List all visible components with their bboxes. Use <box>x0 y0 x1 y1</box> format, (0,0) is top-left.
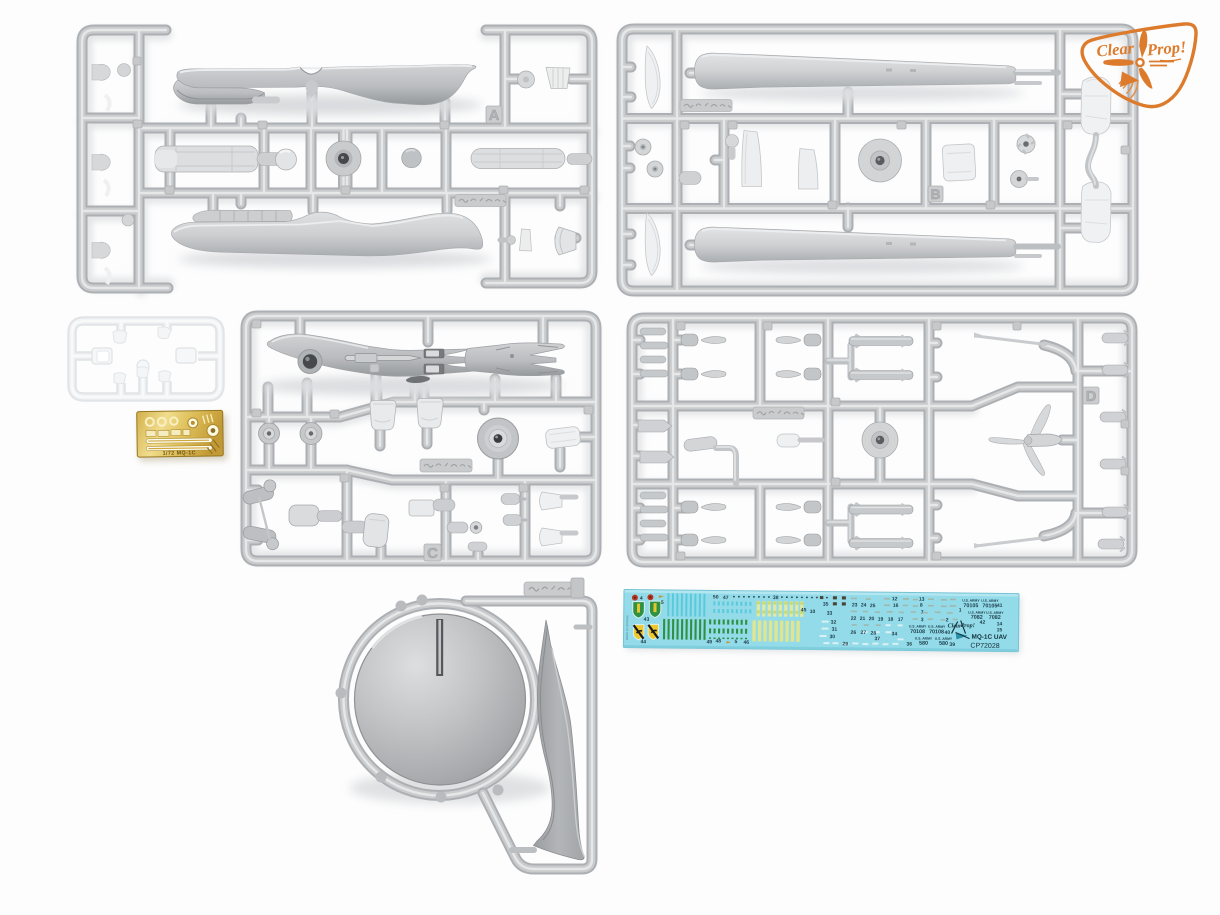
svg-text:Prop!: Prop! <box>1145 37 1187 59</box>
svg-text:CP72028: CP72028 <box>970 643 999 650</box>
svg-text:19: 19 <box>878 617 884 623</box>
svg-text:70105: 70105 <box>982 603 997 609</box>
svg-text:1: 1 <box>959 608 962 614</box>
svg-text:3: 3 <box>921 617 924 623</box>
svg-text:21: 21 <box>860 616 866 622</box>
svg-text:580: 580 <box>939 641 948 647</box>
svg-text:34: 34 <box>892 631 898 637</box>
svg-text:40: 40 <box>945 630 951 636</box>
svg-text:8: 8 <box>920 603 923 609</box>
svg-text:33: 33 <box>827 611 833 617</box>
svg-text:B: B <box>930 186 940 202</box>
svg-text:7: 7 <box>921 610 924 616</box>
svg-text:42: 42 <box>980 620 986 626</box>
svg-text:70108: 70108 <box>910 629 925 635</box>
svg-text:10: 10 <box>810 609 816 615</box>
svg-text:17: 17 <box>898 617 904 623</box>
svg-text:24: 24 <box>861 602 867 608</box>
svg-text:MQ-1C UAV: MQ-1C UAV <box>971 634 1007 641</box>
svg-text:18: 18 <box>888 617 894 623</box>
svg-text:38: 38 <box>773 595 779 601</box>
svg-text:50: 50 <box>713 594 719 600</box>
svg-text:41: 41 <box>997 603 1003 609</box>
svg-text:12: 12 <box>892 596 898 602</box>
svg-text:31: 31 <box>832 627 838 633</box>
svg-text:27: 27 <box>861 630 867 636</box>
svg-text:13: 13 <box>919 597 925 603</box>
svg-text:D: D <box>1086 388 1097 405</box>
svg-text:7082: 7082 <box>989 615 1001 621</box>
svg-text:44: 44 <box>640 639 646 645</box>
svg-text:35: 35 <box>823 602 829 608</box>
svg-text:23: 23 <box>852 602 858 608</box>
svg-text:49: 49 <box>706 639 712 645</box>
svg-text:MADE IN UKRAINE: MADE IN UKRAINE <box>625 615 629 640</box>
svg-text:45: 45 <box>801 607 807 613</box>
svg-text:43: 43 <box>644 617 650 623</box>
svg-text:39: 39 <box>949 642 955 648</box>
svg-text:Prop!: Prop! <box>961 623 975 629</box>
svg-text:70105: 70105 <box>963 603 978 609</box>
svg-text:48: 48 <box>715 638 721 644</box>
svg-text:22: 22 <box>851 616 857 622</box>
svg-text:580: 580 <box>919 641 928 647</box>
svg-text:5: 5 <box>661 600 664 606</box>
svg-text:70108: 70108 <box>929 629 944 635</box>
svg-text:47: 47 <box>723 595 729 601</box>
svg-text:37: 37 <box>874 636 880 642</box>
svg-text:25: 25 <box>870 603 876 609</box>
svg-text:26: 26 <box>851 630 857 636</box>
svg-text:29: 29 <box>842 641 848 647</box>
svg-text:16: 16 <box>893 603 899 609</box>
svg-text:1/72 MQ-1C: 1/72 MQ-1C <box>163 450 196 456</box>
svg-text:36: 36 <box>906 641 912 647</box>
svg-text:5: 5 <box>734 639 737 645</box>
svg-text:A: A <box>489 107 500 124</box>
svg-text:30: 30 <box>829 634 835 640</box>
svg-text:46: 46 <box>743 640 749 646</box>
svg-text:20: 20 <box>869 616 875 622</box>
svg-text:Clear: Clear <box>1096 38 1136 60</box>
svg-text:4: 4 <box>640 596 643 602</box>
svg-text:32: 32 <box>831 620 837 626</box>
svg-text:C: C <box>427 545 438 562</box>
svg-text:15: 15 <box>997 627 1003 633</box>
